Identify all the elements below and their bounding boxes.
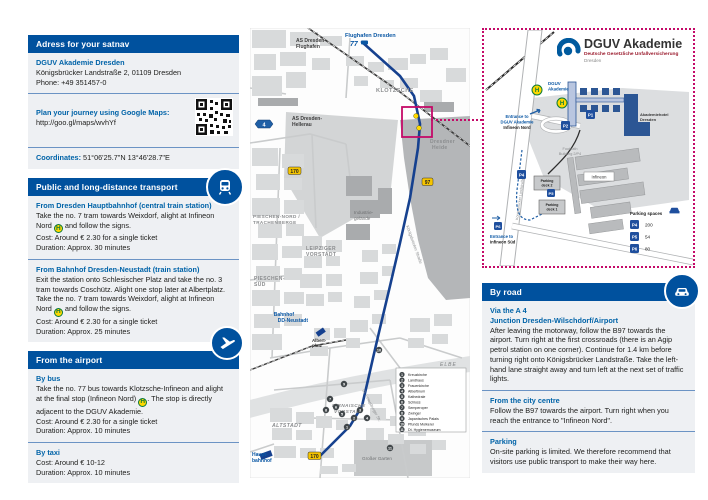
coordinates-label: Coordinates:	[36, 153, 81, 162]
maps-label: Plan your journey using Google Maps:	[36, 108, 196, 118]
svg-text:4: 4	[401, 389, 403, 393]
svg-text:9: 9	[401, 417, 403, 421]
svg-text:80: 80	[645, 247, 651, 252]
svg-text:H: H	[535, 88, 539, 94]
dguv-logo-city: Dresden	[584, 58, 682, 63]
train-icon	[206, 168, 244, 206]
by-taxi-cost: Cost: Around € 10-12	[36, 458, 231, 468]
svg-text:Parking: Parking	[541, 179, 554, 183]
svg-text:2: 2	[401, 378, 403, 382]
svg-text:97: 97	[425, 180, 431, 186]
via-a4-title2: Junction Dresden-Wilschdorf/Airport	[490, 316, 687, 326]
svg-text:Infineon Nord: Infineon Nord	[503, 125, 531, 130]
from-hbf-duration: Duration: Approx. 30 minutes	[36, 243, 231, 253]
svg-text:Akademie: Akademie	[548, 87, 569, 92]
tram-stop-icon: H	[54, 224, 63, 233]
parking-block: Parking On-site parking is limited. We t…	[482, 431, 695, 472]
right-column: By road Via the A 4 Junction Dresden-Wil…	[482, 283, 695, 473]
svg-text:gelände: gelände	[354, 216, 371, 221]
directions-page: Adress for your satnav DGUV Akademie Dre…	[0, 0, 708, 500]
stop-dot	[414, 114, 419, 119]
from-hbf-block: From Dresden Hauptbahnhof (central train…	[28, 196, 239, 259]
svg-text:Kreuzkirche: Kreuzkirche	[408, 373, 427, 377]
svg-text:P5: P5	[549, 191, 555, 196]
svg-text:1: 1	[401, 373, 403, 377]
elbe-label: ELBE	[440, 362, 457, 368]
svg-text:10: 10	[400, 422, 404, 426]
map-connector-line	[431, 119, 482, 121]
svg-text:Albertinum: Albertinum	[408, 390, 425, 394]
from-hbf-title: From Dresden Hauptbahnhof (central train…	[36, 201, 231, 211]
bus-stop-icon: H	[138, 398, 147, 407]
svg-text:P6: P6	[496, 224, 502, 229]
svg-text:P6: P6	[632, 247, 638, 252]
akademie-label: DGUV	[548, 81, 561, 86]
by-bus-block: By bus Take the no. 77 bus towards Klotz…	[28, 369, 239, 442]
b170-shield-south: 170	[308, 452, 321, 460]
svg-text:DGUV Akademie: DGUV Akademie	[501, 120, 535, 125]
svg-text:P2: P2	[563, 124, 569, 129]
from-neustadt-body: Exit the station onto Schlesischer Platz…	[36, 275, 231, 317]
from-neustadt-title: From Bahnhof Dresden-Neustadt (train sta…	[36, 265, 231, 275]
svg-text:Hellerau: Hellerau	[292, 122, 312, 128]
via-a4-body: After leaving the motorway, follow the B…	[490, 326, 687, 385]
maps-url[interactable]: http://goo.gl/maps/wvhYf	[36, 118, 196, 128]
svg-text:1: 1	[346, 425, 348, 429]
svg-text:Dt. Hygienemuseum: Dt. Hygienemuseum	[408, 428, 441, 432]
svg-text:P1: P1	[588, 113, 594, 118]
from-neustadt-cost: Cost: Around € 2.30 for a single ticket	[36, 317, 231, 327]
entrance-nord-label: Entrance to	[505, 114, 528, 119]
satnav-phone: Phone: +49 351457-0	[36, 78, 231, 88]
svg-text:5: 5	[341, 412, 343, 416]
svg-text:7: 7	[329, 397, 331, 401]
infineon-label: Infineon	[592, 174, 608, 179]
dguv-logo: DGUV Akademie Deutsche Gesetzliche Unfal…	[557, 38, 685, 63]
svg-text:Parking spaces: Parking spaces	[630, 211, 663, 216]
by-road-header: By road	[482, 283, 695, 301]
coordinates-value: 51°06'25.7"N 13°46'28.7"E	[83, 153, 170, 162]
svg-text:Semperoper: Semperoper	[408, 406, 429, 410]
grosser-garten-label: Großer Garten	[362, 456, 392, 461]
svg-text:TRACHENBERGE: TRACHENBERGE	[253, 220, 297, 225]
svg-text:200: 200	[645, 223, 653, 228]
maps-block: Plan your journey using Google Maps: htt…	[28, 93, 239, 147]
svg-text:Dresden: Dresden	[640, 117, 657, 122]
from-hbf-body: Take the no. 7 tram towards Weixdorf, al…	[36, 211, 231, 234]
transport-header: Public and long-distance transport	[28, 178, 239, 196]
svg-text:11: 11	[388, 446, 392, 450]
tram-stop-icon: H	[54, 308, 63, 317]
svg-text:170: 170	[290, 169, 299, 175]
by-bus-title: By bus	[36, 374, 231, 384]
via-a4-block: Via the A 4 Junction Dresden-Wilschdorf/…	[482, 301, 695, 390]
svg-text:P4: P4	[519, 173, 525, 178]
left-column: Adress for your satnav DGUV Akademie Dre…	[28, 35, 239, 483]
svg-text:SÜD: SÜD	[254, 281, 266, 288]
industrie-label: Industrie-	[354, 210, 374, 215]
by-taxi-block: By taxi Cost: Around € 10-12 Duration: A…	[28, 442, 239, 483]
svg-text:11: 11	[400, 428, 404, 432]
qr-code	[195, 98, 233, 136]
svg-text:6: 6	[335, 405, 337, 409]
svg-text:Heide: Heide	[432, 145, 448, 151]
parking-legend: Parking spaces P4 200 P5 54 P6 80	[630, 208, 680, 253]
svg-text:Building 2/P4: Building 2/P4	[559, 152, 581, 156]
satnav-address: Königsbrücker Landstraße 2, 01109 Dresde…	[36, 68, 231, 78]
svg-text:Schloss: Schloss	[408, 401, 421, 405]
from-hbf-cost: Cost: Around € 2.30 for a single ticket	[36, 233, 231, 243]
campus-map: Königsbrücker Landstraße	[482, 28, 695, 268]
svg-text:7: 7	[401, 406, 403, 410]
airport-label: Flughafen Dresden	[345, 33, 396, 39]
car-glyph	[670, 208, 680, 214]
coordinates-block: Coordinates: 51°06'25.7"N 13°46'28.7"E	[28, 147, 239, 169]
svg-text:6: 6	[401, 400, 403, 404]
by-bus-duration: Duration: Approx. 10 minutes	[36, 426, 231, 436]
svg-text:8: 8	[401, 411, 403, 415]
svg-text:8: 8	[325, 408, 327, 412]
sights-legend: 1Kreuzkirche 2Landhaus 3Frauenkirche 4Al…	[396, 368, 466, 432]
svg-text:deck 1: deck 1	[547, 208, 558, 212]
airport-header: From the airport	[28, 351, 239, 369]
svg-text:Infineon Süd: Infineon Süd	[490, 240, 516, 245]
b97-shield: 97	[422, 178, 433, 186]
by-taxi-duration: Duration: Approx. 10 minutes	[36, 468, 231, 478]
dguv-logo-icon	[557, 38, 581, 60]
satnav-address-block: DGUV Akademie Dresden Königsbrücker Land…	[28, 53, 239, 93]
svg-text:bahnhof: bahnhof	[252, 458, 272, 464]
a4-shield: 4	[255, 120, 273, 128]
by-bus-cost: Cost: Around € 2.30 for a single ticket	[36, 417, 231, 427]
svg-text:5: 5	[401, 395, 403, 399]
city-centre-body: Follow the B97 towards the airport. Turn…	[490, 406, 687, 426]
svg-text:Frauenkirche: Frauenkirche	[408, 384, 429, 388]
by-bus-body: Take the no. 77 bus towards Klotzsche-In…	[36, 384, 231, 416]
parking-body: On-site parking is limited. We therefore…	[490, 447, 687, 467]
svg-text:Flughafen: Flughafen	[296, 44, 320, 50]
svg-text:54: 54	[645, 235, 651, 240]
svg-text:platz: platz	[312, 343, 323, 348]
svg-text:Landhaus: Landhaus	[408, 379, 424, 383]
city-map: 4 170 97 170 Flughafen Dresden 77 AS Dre…	[250, 28, 470, 478]
city-centre-block: From the city centre Follow the B97 towa…	[482, 390, 695, 431]
svg-text:deck 2: deck 2	[542, 184, 553, 188]
svg-text:P5: P5	[632, 235, 638, 240]
svg-text:2: 2	[353, 416, 355, 420]
satnav-header: Adress for your satnav	[28, 35, 239, 53]
svg-text:9: 9	[343, 382, 345, 386]
svg-text:P4: P4	[632, 223, 638, 228]
from-neustadt-duration: Duration: Approx. 25 minutes	[36, 327, 231, 337]
plane-icon	[210, 326, 244, 360]
entrance-sued-label: Entrance to	[490, 234, 513, 239]
via-a4-title1: Via the A 4	[490, 306, 687, 316]
klotzsche-label: KLOTZSCHE	[376, 88, 414, 94]
dguv-logo-subtitle: Deutsche Gesetzliche Unfallversicherung	[584, 52, 682, 57]
city-centre-title: From the city centre	[490, 396, 687, 406]
svg-text:Japanisches Palais: Japanisches Palais	[408, 417, 439, 421]
svg-text:DD-Neustadt: DD-Neustadt	[278, 318, 309, 324]
svg-text:Parking: Parking	[546, 203, 559, 207]
bus-icon	[361, 41, 368, 45]
car-icon	[664, 273, 700, 309]
svg-text:170: 170	[310, 454, 319, 460]
satnav-name: DGUV Akademie Dresden	[36, 58, 231, 68]
footpath-label: Footpath	[563, 147, 578, 151]
svg-text:Pfunds Molkerei: Pfunds Molkerei	[408, 423, 434, 427]
b170-shield: 170	[288, 167, 301, 175]
svg-text:10: 10	[377, 348, 381, 352]
svg-text:H: H	[560, 101, 564, 107]
from-neustadt-block: From Bahnhof Dresden-Neustadt (train sta…	[28, 259, 239, 342]
svg-text:VORSTADT: VORSTADT	[306, 252, 336, 258]
svg-text:Kathedrale: Kathedrale	[408, 395, 425, 399]
altstadt-label: ALTSTADT	[271, 423, 302, 429]
parking-title: Parking	[490, 437, 687, 447]
svg-text:Zwinger: Zwinger	[408, 412, 422, 416]
svg-text:3: 3	[359, 408, 361, 412]
by-taxi-title: By taxi	[36, 448, 231, 458]
svg-text:3: 3	[401, 384, 403, 388]
stop-dot	[417, 126, 422, 131]
dguv-logo-title: DGUV Akademie	[584, 38, 682, 51]
bus-line-label: 77	[350, 41, 359, 48]
pieschen-nord-label: PIESCHEN-NORD /	[253, 214, 300, 219]
